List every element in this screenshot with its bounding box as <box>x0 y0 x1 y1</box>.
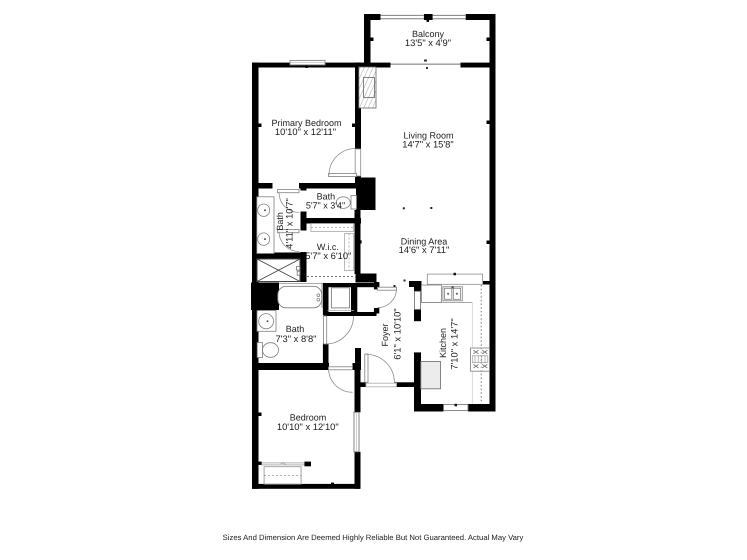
svg-text:Kitchen: Kitchen <box>438 328 448 358</box>
svg-text:6'1" x 10'10": 6'1" x 10'10" <box>392 308 403 359</box>
svg-text:10'10" x 12'11": 10'10" x 12'11" <box>275 126 336 137</box>
svg-text:4'11" x 10'7": 4'11" x 10'7" <box>284 198 295 249</box>
svg-text:5'7" x 6'10": 5'7" x 6'10" <box>305 250 351 261</box>
svg-text:13'5" x 4'9": 13'5" x 4'9" <box>405 37 451 48</box>
svg-text:7'3" x 8'8": 7'3" x 8'8" <box>276 333 317 344</box>
svg-text:Foyer: Foyer <box>380 323 390 346</box>
svg-text:14'6" x 7'11": 14'6" x 7'11" <box>399 244 450 255</box>
svg-text:7'10" x 14'7": 7'10" x 14'7" <box>449 318 460 369</box>
svg-text:14'7" x 15'8": 14'7" x 15'8" <box>402 139 453 150</box>
svg-text:5'7" x 3'4": 5'7" x 3'4" <box>306 200 345 210</box>
svg-text:10'10" x 12'10": 10'10" x 12'10" <box>277 421 339 432</box>
svg-text:Sizes And Dimension Are Deemed: Sizes And Dimension Are Deemed Highly Re… <box>223 533 524 542</box>
